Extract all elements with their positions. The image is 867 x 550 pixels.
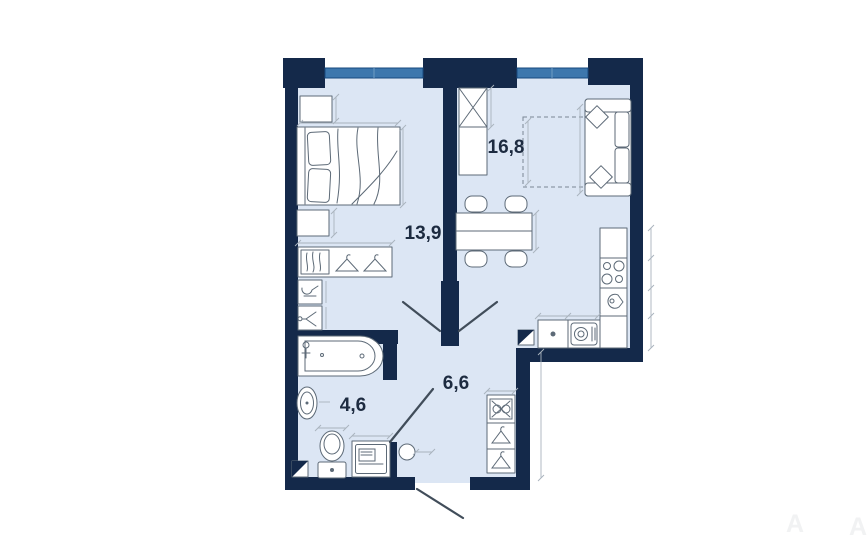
chair [505, 251, 527, 267]
pillow-icon [307, 168, 331, 202]
chair [465, 251, 487, 267]
wall-segment [285, 58, 298, 490]
chair [505, 196, 527, 212]
pillow-icon [307, 131, 331, 165]
door-swing-entrance [417, 489, 463, 518]
wardrobe-clothes-icon [301, 250, 329, 274]
shelf-towels [298, 280, 322, 304]
nightstand [300, 96, 332, 122]
kitchen-counter [600, 228, 627, 258]
base-unit-dot [551, 332, 556, 337]
wall-segment [441, 281, 459, 346]
dimension-line [538, 349, 544, 481]
wall-segment [516, 348, 530, 490]
kitchen-corner-counter [600, 316, 627, 348]
wall-segment [423, 58, 517, 88]
chair [465, 196, 487, 212]
tall-cabinet [459, 88, 487, 175]
wall-segment [285, 477, 415, 490]
floor-plan-page: 13,9 16,8 4,6 6,6 A A [0, 0, 867, 550]
wall-segment [516, 348, 643, 362]
nightstand [297, 210, 329, 236]
wall-segment [383, 330, 397, 380]
dimension-line [648, 225, 654, 351]
sofa-back-cushion [615, 148, 629, 183]
sofa-back-cushion [615, 112, 629, 147]
floor-plan-canvas: 13,9 16,8 4,6 6,6 A A [0, 0, 867, 550]
area-label-bathroom: 4,6 [340, 395, 366, 416]
area-label-bedroom: 13,9 [405, 223, 442, 244]
toilet-button [330, 468, 334, 472]
sink-drain [306, 402, 309, 405]
pouf [399, 444, 415, 460]
toilet-bowl [320, 431, 344, 461]
area-label-hallway: 6,6 [443, 373, 469, 394]
hall-wardrobe [487, 395, 515, 473]
bathtub [298, 336, 383, 376]
watermark-letter: A [786, 510, 804, 538]
wall-segment [630, 58, 643, 362]
washing-machine [352, 441, 390, 477]
watermark: A A [786, 510, 867, 541]
sofa-armrest [585, 183, 631, 196]
watermark-letter: A [849, 513, 867, 541]
area-label-living: 16,8 [488, 137, 525, 158]
sofa-armrest [585, 99, 631, 112]
